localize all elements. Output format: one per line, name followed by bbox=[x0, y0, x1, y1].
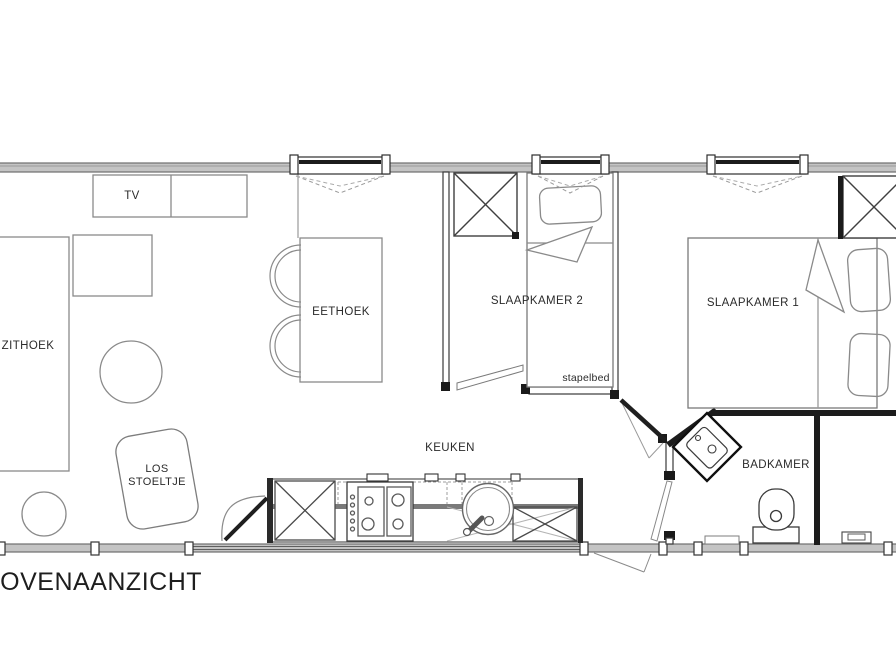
entrance-door-swing bbox=[594, 553, 651, 572]
washbasin bbox=[673, 413, 741, 481]
view-title: BOVENAANZICHT bbox=[0, 568, 202, 597]
window-living bbox=[290, 155, 390, 193]
kitchen-cabinet-left bbox=[275, 481, 335, 540]
hall-door bbox=[621, 400, 665, 458]
kitchen-end-door bbox=[222, 496, 267, 541]
bathroom-threshold bbox=[842, 532, 871, 543]
room-label-badkamer: BADKAMER bbox=[742, 459, 810, 471]
room-label-slaapkamer1: SLAAPKAMER 1 bbox=[707, 297, 799, 309]
room-label-keuken: KEUKEN bbox=[425, 442, 475, 454]
bedroom2-door bbox=[457, 365, 523, 390]
room-label-eethoek: EETHOEK bbox=[312, 306, 370, 318]
note-stapelbed: stapelbed bbox=[562, 372, 609, 384]
room-label-slaapkamer2: SLAAPKAMER 2 bbox=[491, 295, 583, 307]
toilet bbox=[753, 489, 799, 543]
kitchen-counter bbox=[267, 474, 583, 543]
side-table bbox=[73, 235, 152, 296]
stove bbox=[347, 482, 413, 541]
double-bed bbox=[688, 238, 891, 408]
loose-chair-label: LOS STOELTJE bbox=[122, 463, 192, 489]
floorplan-canvas: TV ZITHOEK EETHOEK SLAAPKAMER 2 stapelbe… bbox=[0, 0, 896, 672]
sofa bbox=[0, 237, 69, 471]
dining-chairs bbox=[270, 245, 301, 377]
side-step bbox=[705, 536, 739, 544]
sink bbox=[463, 484, 514, 536]
exterior-wall-bottom bbox=[0, 544, 896, 552]
room-label-zithoek: ZITHOEK bbox=[2, 340, 55, 352]
tv-label: TV bbox=[124, 190, 140, 202]
bedroom1-closet bbox=[838, 176, 896, 239]
tv-cabinet bbox=[93, 175, 247, 217]
dining-table bbox=[298, 172, 382, 382]
bedroom2-closet bbox=[454, 173, 519, 239]
single-bed bbox=[527, 173, 613, 387]
window-bedroom1 bbox=[707, 155, 808, 193]
coffee-table bbox=[100, 341, 162, 403]
round-stool bbox=[22, 492, 66, 536]
